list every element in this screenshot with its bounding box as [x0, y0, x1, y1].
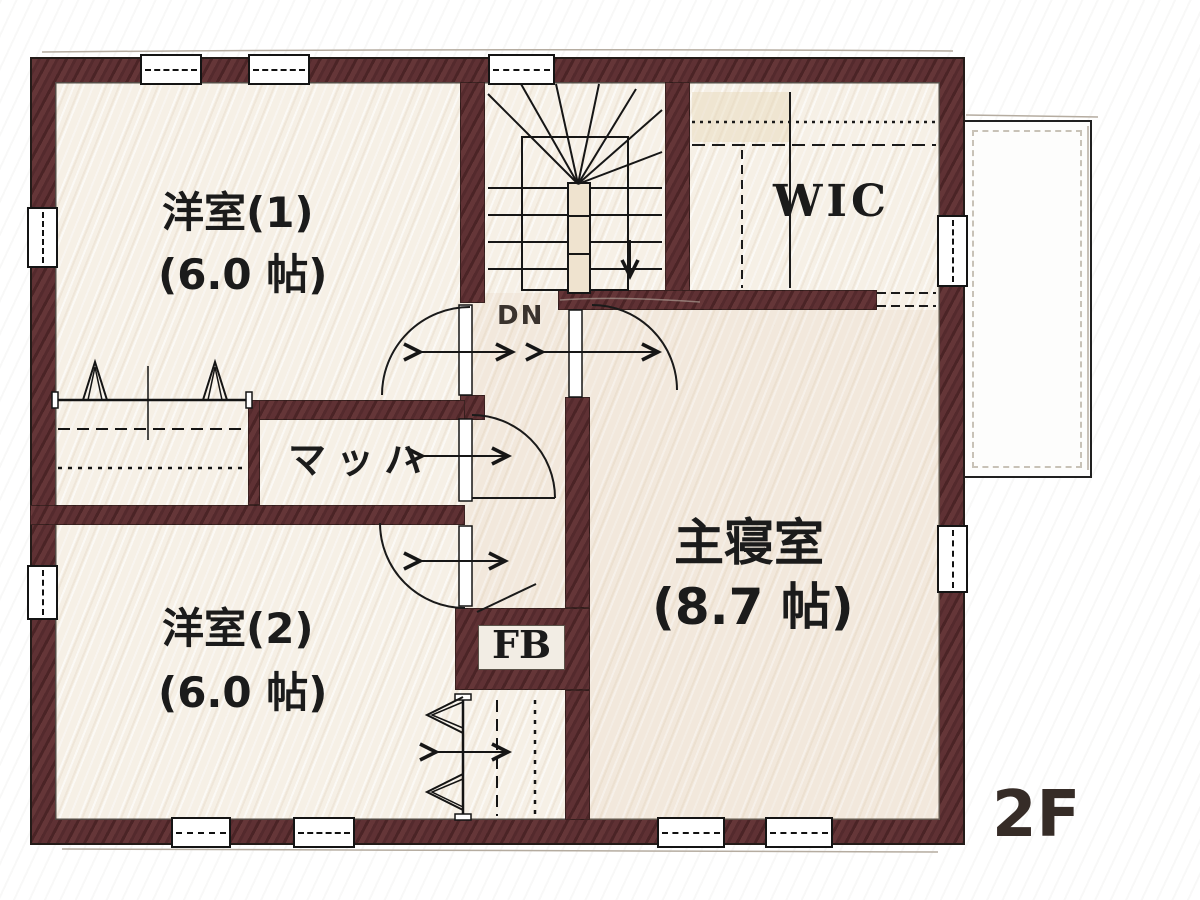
wall-closet2-right	[565, 690, 590, 820]
window	[488, 54, 555, 85]
wall-below-stairs-wic	[558, 290, 877, 310]
window	[937, 525, 968, 593]
window	[140, 54, 202, 85]
wic-label: WIC	[773, 178, 890, 226]
floor-plan-canvas: 洋室(1) (6.0 帖) 洋室(2) (6.0 帖) 主寝室 (8.7 帖) …	[0, 0, 1200, 900]
room2-size: (6.0 帖)	[158, 670, 327, 716]
room2-name: 洋室(2)	[162, 606, 314, 652]
room1-size: (6.0 帖)	[158, 252, 327, 298]
wall-closet-machi-divider	[248, 400, 260, 505]
wall-stairs-wic	[665, 82, 690, 310]
master-bedroom-name: 主寝室	[674, 516, 824, 571]
wall-machi-top	[250, 400, 465, 420]
balcony	[962, 120, 1092, 478]
wall-closets-bottom	[30, 505, 465, 525]
window	[657, 817, 725, 848]
window	[765, 817, 833, 848]
wall-room1-stairs	[460, 82, 485, 303]
window	[937, 215, 968, 287]
balcony-edge-dashed	[972, 130, 1082, 468]
window	[248, 54, 310, 85]
window	[171, 817, 231, 848]
window	[27, 565, 58, 620]
wall-master-left	[565, 397, 590, 608]
room1-name: 洋室(1)	[162, 190, 314, 236]
floor-label: 2F	[992, 780, 1080, 850]
machi-closet-label: マッハ	[288, 440, 432, 482]
window	[27, 207, 58, 268]
fb-label: FB	[492, 624, 551, 666]
master-bedroom-size: (8.7 帖)	[652, 580, 854, 635]
stairs-dn-label: DN	[497, 302, 544, 331]
window	[293, 817, 355, 848]
